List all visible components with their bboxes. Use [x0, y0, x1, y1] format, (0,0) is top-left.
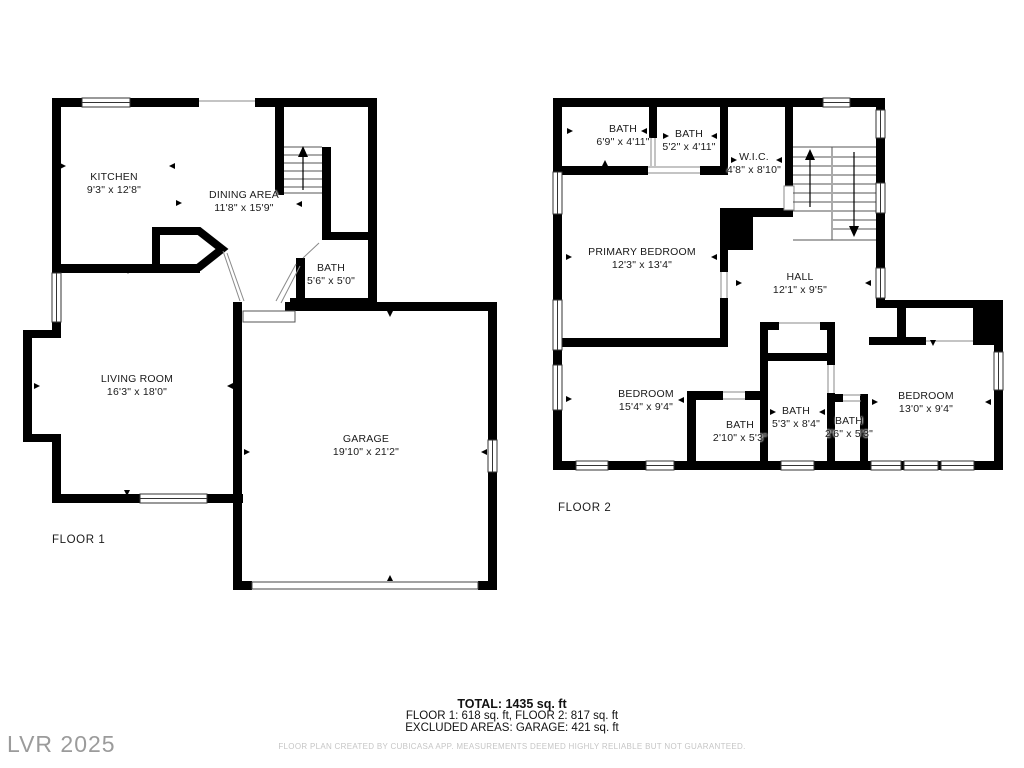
room-label-bedroom-right: BEDROOM 13'0" x 9'4" [898, 390, 954, 416]
room-dims: 2'6" x 5'3" [825, 428, 873, 441]
room-dims: 2'10" x 5'3" [713, 432, 767, 445]
window [140, 494, 207, 503]
room-dims: 19'10" x 21'2" [333, 446, 399, 459]
window [553, 365, 562, 410]
window [488, 440, 497, 472]
window [553, 172, 562, 214]
window [823, 98, 850, 107]
window [876, 183, 885, 213]
room-label-hall: HALL 12'1" x 9'5" [773, 271, 827, 297]
room-dims: 9'3" x 12'8" [87, 184, 141, 197]
room-name: W.I.C. [727, 151, 781, 164]
wic-door-gap [784, 186, 794, 210]
room-label-kitchen: KITCHEN 9'3" x 12'8" [87, 171, 141, 197]
room-name: BATH [662, 128, 715, 141]
window [876, 268, 885, 298]
room-dims: 6'9" x 4'11" [596, 136, 649, 149]
summary-total: TOTAL: 1435 sq. ft [0, 697, 1024, 711]
floor1-windows [52, 98, 497, 503]
staircase-floor2 [793, 147, 876, 240]
window [994, 352, 1003, 390]
window [576, 461, 608, 470]
garage-vehicle-door [252, 582, 478, 589]
window [646, 461, 674, 470]
watermark: LVR 2025 [7, 731, 116, 758]
window [82, 98, 130, 107]
kitchen-pantry-wall [156, 231, 222, 268]
room-name: PRIMARY BEDROOM [588, 246, 696, 259]
room-dims: 4'8" x 8'10" [727, 164, 781, 177]
room-label-bedroom-left: BEDROOM 15'4" x 9'4" [618, 388, 674, 414]
room-name: BATH [307, 262, 355, 275]
room-dims: 15'4" x 9'4" [618, 401, 674, 414]
room-label-bath2-small-right: BATH 2'6" x 5'3" [825, 415, 873, 441]
window [941, 461, 974, 470]
summary-excluded: EXCLUDED AREAS: GARAGE: 421 sq. ft [0, 722, 1024, 734]
room-label-bath2-2: BATH 5'2" x 4'11" [662, 128, 715, 154]
room-name: BATH [825, 415, 873, 428]
stairs-down-arrow-icon [849, 152, 859, 237]
stairs-up-arrow-icon [805, 149, 815, 207]
room-dims: 5'6" x 5'0" [307, 275, 355, 288]
room-name: BATH [713, 419, 767, 432]
room-name: BEDROOM [898, 390, 954, 403]
room-label-bath-floor1: BATH 5'6" x 5'0" [307, 262, 355, 288]
window [876, 110, 885, 138]
room-name: BATH [772, 405, 820, 418]
room-dims: 16'3" x 18'0" [101, 386, 173, 399]
floor1-ticks [34, 163, 487, 581]
garage-door-leaf [243, 311, 295, 322]
room-label-bath2-middle: BATH 5'3" x 8'4" [772, 405, 820, 431]
room-name: DINING AREA [209, 189, 279, 202]
floor-plan-page: KITCHEN 9'3" x 12'8" DINING AREA 11'8" x… [0, 0, 1024, 768]
room-dims: 12'3" x 13'4" [588, 259, 696, 272]
room-dims: 12'1" x 9'5" [773, 284, 827, 297]
window [871, 461, 901, 470]
room-name: KITCHEN [87, 171, 141, 184]
room-name: BEDROOM [618, 388, 674, 401]
room-label-garage: GARAGE 19'10" x 21'2" [333, 433, 399, 459]
room-label-living-room: LIVING ROOM 16'3" x 18'0" [101, 373, 173, 399]
room-label-bath2-1: BATH 6'9" x 4'11" [596, 123, 649, 149]
room-name: BATH [596, 123, 649, 136]
room-dims: 5'2" x 4'11" [662, 141, 715, 154]
room-label-primary-bedroom: PRIMARY BEDROOM 12'3" x 13'4" [588, 246, 696, 272]
room-dims: 11'8" x 15'9" [209, 202, 279, 215]
window [52, 273, 61, 322]
room-name: GARAGE [333, 433, 399, 446]
room-dims: 13'0" x 9'4" [898, 403, 954, 416]
window [553, 300, 562, 350]
summary-disclaimer: FLOOR PLAN CREATED BY CUBICASA APP. MEAS… [0, 742, 1024, 751]
room-label-wic: W.I.C. 4'8" x 8'10" [727, 151, 781, 177]
room-label-bath2-small-left: BATH 2'10" x 5'3" [713, 419, 767, 445]
room-name: LIVING ROOM [101, 373, 173, 386]
floor1-label: FLOOR 1 [52, 534, 105, 546]
floor2-label: FLOOR 2 [558, 502, 611, 514]
room-name: HALL [773, 271, 827, 284]
room-dims: 5'3" x 8'4" [772, 418, 820, 431]
stairs-up-arrow-icon [298, 146, 308, 190]
window [781, 461, 814, 470]
window [904, 461, 938, 470]
summary-floors: FLOOR 1: 618 sq. ft, FLOOR 2: 817 sq. ft [0, 710, 1024, 722]
room-label-dining-area: DINING AREA 11'8" x 15'9" [209, 189, 279, 215]
